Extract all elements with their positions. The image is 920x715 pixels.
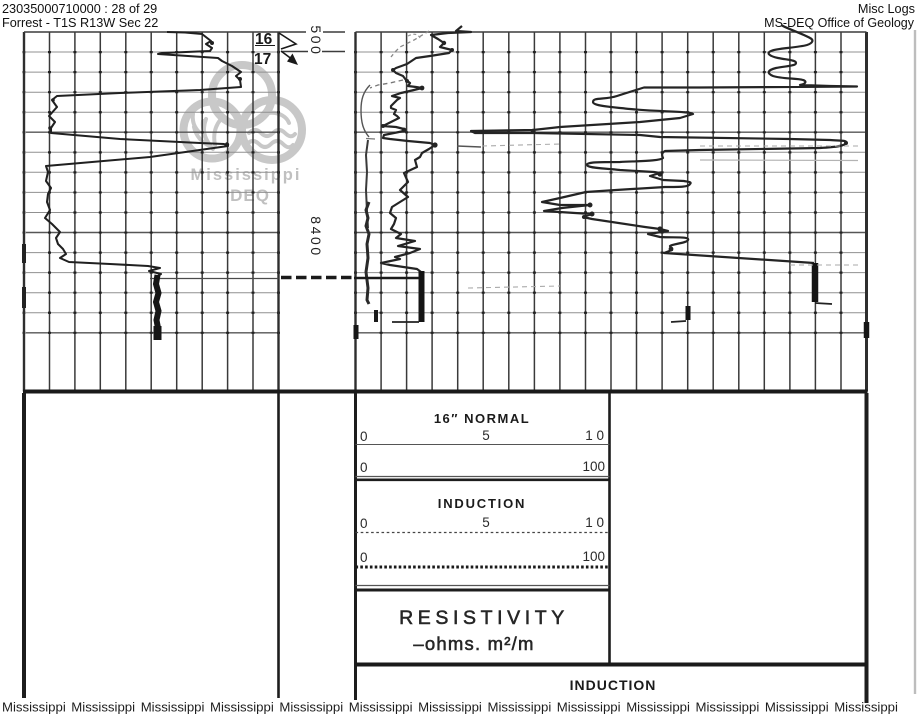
svg-text:Mississippi: Mississippi — [71, 700, 135, 715]
svg-text:16″ NORMAL: 16″ NORMAL — [434, 411, 530, 426]
svg-text:23035000710000 : 28 of 29: 23035000710000 : 28 of 29 — [2, 2, 157, 16]
svg-text:Forrest - T1S R13W Sec 22: Forrest - T1S R13W Sec 22 — [2, 16, 158, 30]
svg-text:100: 100 — [582, 549, 605, 564]
svg-text:INDUCTION: INDUCTION — [438, 496, 526, 511]
svg-text:5: 5 — [482, 515, 490, 530]
svg-text:Misc Logs: Misc Logs — [858, 2, 915, 16]
svg-text:INDUCTION: INDUCTION — [570, 677, 657, 693]
svg-text:100: 100 — [582, 459, 605, 474]
svg-text:0: 0 — [360, 550, 368, 565]
svg-text:Mississippi: Mississippi — [488, 700, 552, 715]
svg-text:Mississippi: Mississippi — [834, 700, 898, 715]
svg-text:–ohms. m²/m: –ohms. m²/m — [413, 633, 534, 654]
svg-text:Mississippi: Mississippi — [2, 700, 66, 715]
svg-text:0: 0 — [360, 460, 368, 475]
svg-text:5: 5 — [482, 428, 490, 443]
svg-text:17: 17 — [254, 51, 271, 68]
svg-text:0: 0 — [360, 429, 368, 444]
svg-text:8400: 8400 — [308, 216, 324, 258]
svg-text:Mississippi: Mississippi — [279, 700, 343, 715]
svg-text:Mississippi: Mississippi — [626, 700, 690, 715]
svg-text:Mississippi: Mississippi — [557, 700, 621, 715]
svg-text:Mississippi: Mississippi — [191, 166, 302, 184]
svg-text:0: 0 — [360, 516, 368, 531]
svg-text:1 0: 1 0 — [585, 428, 604, 443]
svg-text:Mississippi: Mississippi — [418, 700, 482, 715]
svg-text:DEQ: DEQ — [230, 186, 270, 205]
svg-text:Mississippi: Mississippi — [696, 700, 760, 715]
svg-text:Mississippi: Mississippi — [141, 700, 205, 715]
svg-text:RESISTIVITY: RESISTIVITY — [399, 607, 569, 629]
svg-text:Mississippi: Mississippi — [349, 700, 413, 715]
svg-text:Mississippi: Mississippi — [765, 700, 829, 715]
svg-text:Mississippi: Mississippi — [210, 700, 274, 715]
svg-text:1 0: 1 0 — [585, 515, 604, 530]
svg-text:500: 500 — [308, 25, 324, 56]
